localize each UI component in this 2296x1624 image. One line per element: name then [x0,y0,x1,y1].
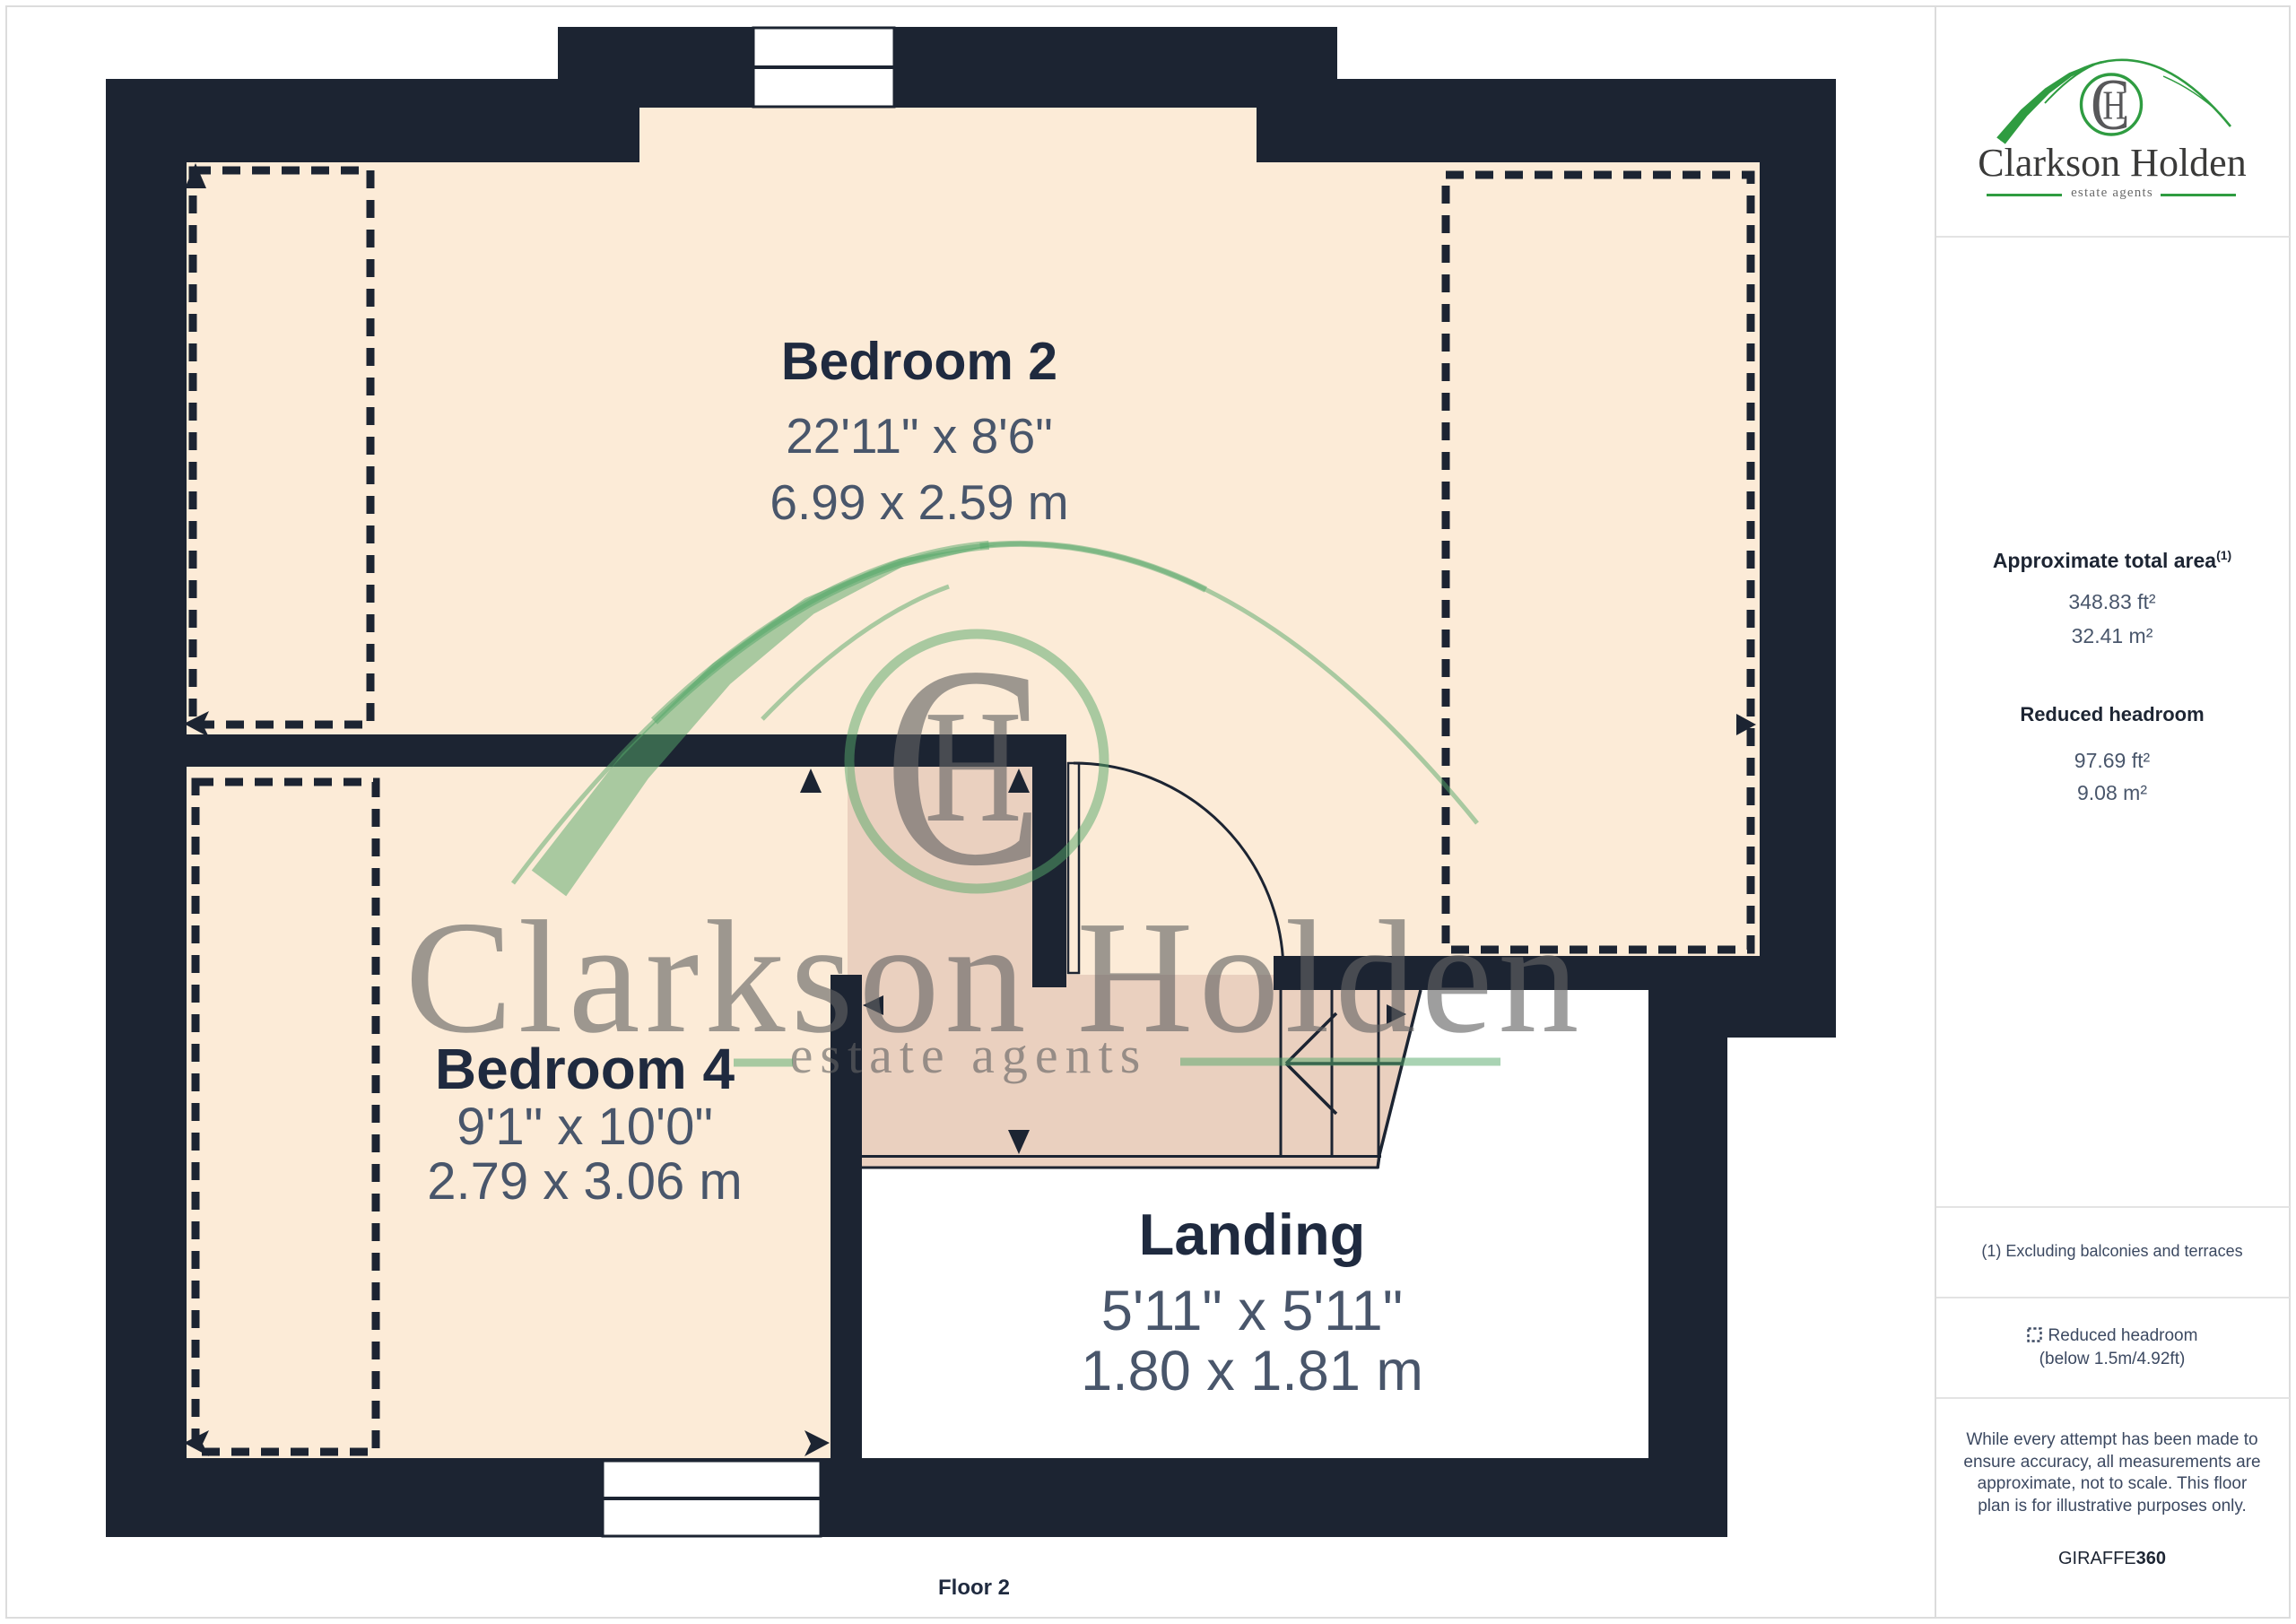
svg-text:H: H [924,677,1022,855]
svg-text:H: H [2102,83,2126,128]
